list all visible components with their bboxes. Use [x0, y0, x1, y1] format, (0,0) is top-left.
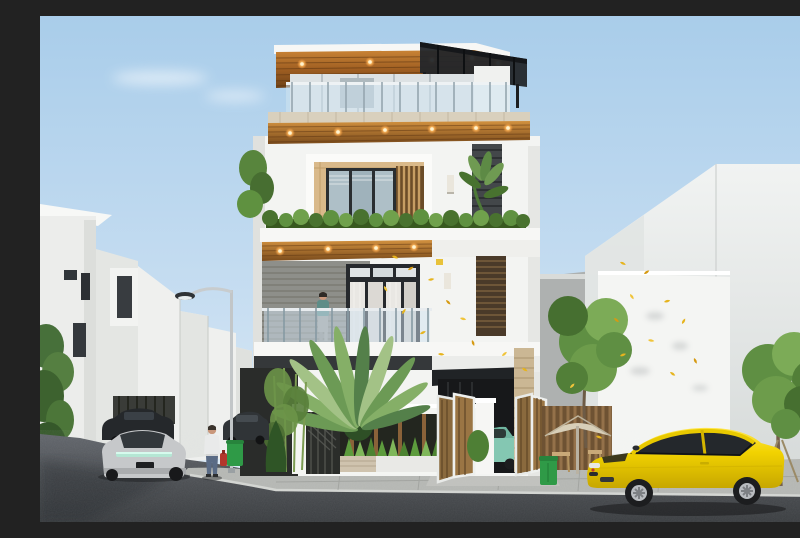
wall-sconce-l3: [447, 175, 454, 192]
wood-louvres-l2: [476, 256, 506, 336]
rooftop-glass-railing: [286, 82, 510, 112]
green-trash-bin-right: [539, 456, 558, 485]
balcony-slab-l3: [260, 228, 540, 242]
green-trash-bin-left: [226, 440, 244, 466]
gate-bush: [467, 430, 489, 462]
wall-sconce-l2: [444, 273, 451, 289]
scene-architectural-render: [40, 16, 800, 522]
balcony-glass-railing: [262, 308, 432, 342]
balcony-slab-l2: [254, 342, 540, 356]
wood-soffit-l3: [268, 121, 530, 144]
front-wheel: [625, 479, 653, 507]
yellow-wall-lamp: [436, 259, 443, 265]
rear-wheel: [733, 477, 761, 505]
